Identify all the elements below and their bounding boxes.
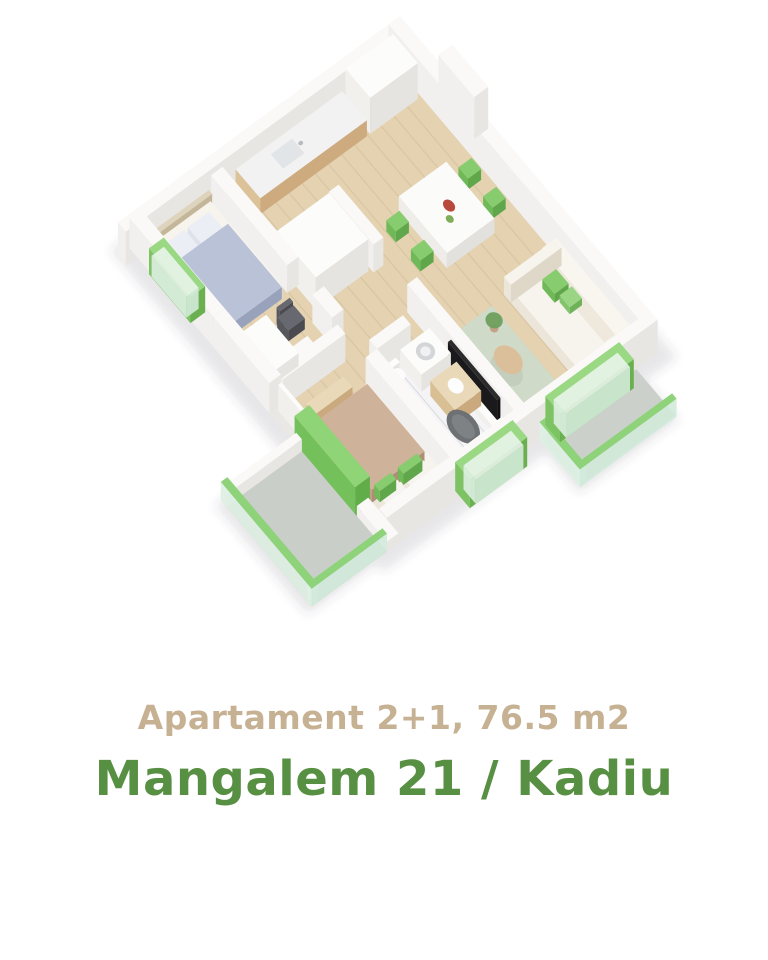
caption: Apartament 2+1, 76.5 m2 Mangalem 21 / Ka…	[0, 698, 768, 807]
real-estate-listing-image: Apartament 2+1, 76.5 m2 Mangalem 21 / Ka…	[0, 0, 768, 960]
apartment-info-text: Apartament 2+1, 76.5 m2	[0, 698, 768, 737]
project-name-text: Mangalem 21 / Kadiu	[0, 751, 768, 807]
floor-plan-svg	[0, 0, 768, 672]
floor-plan-3d	[0, 0, 768, 672]
